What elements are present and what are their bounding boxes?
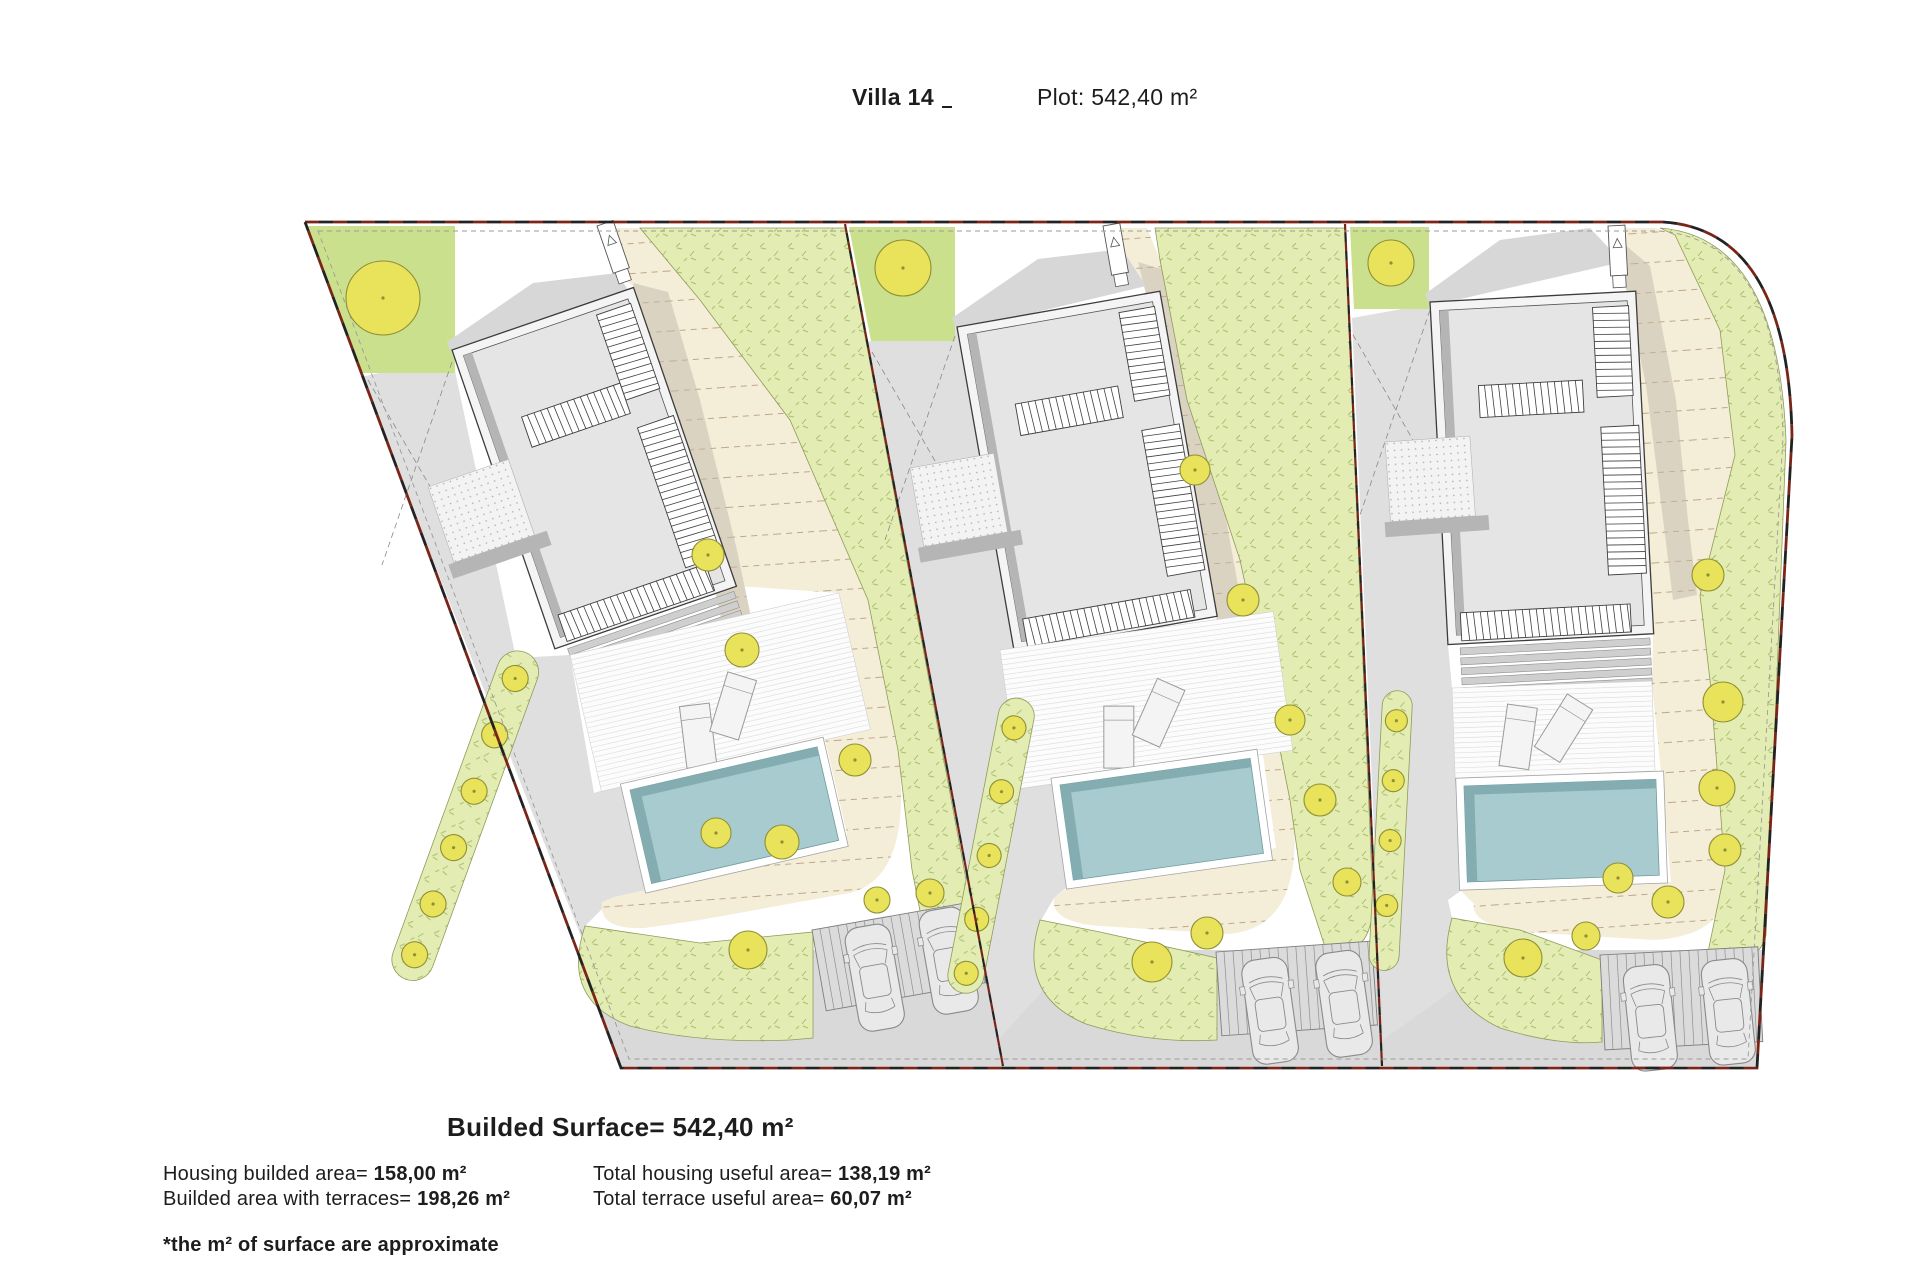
area-row-label: Total housing useful area= <box>593 1163 838 1185</box>
sun-lounger <box>1104 706 1134 768</box>
villa-plot-3 <box>1348 225 1786 1073</box>
title-underline <box>942 106 952 108</box>
tree-icon <box>729 931 767 969</box>
tree-icon <box>916 879 944 907</box>
tree-icon <box>1382 769 1405 792</box>
area-row: Total terrace useful area= 60,07 m² <box>593 1188 912 1211</box>
tree-icon <box>1709 834 1741 866</box>
tree-icon <box>1603 863 1633 893</box>
tree-icon <box>1304 784 1336 816</box>
deck-3 <box>1452 681 1655 786</box>
tree-icon <box>1652 886 1684 918</box>
louver-hatch <box>1478 380 1584 417</box>
area-row-value: 158,00 m² <box>374 1163 467 1185</box>
tree-icon <box>1572 922 1600 950</box>
summary-title: Builded Surface= 542,40 m² <box>447 1112 794 1143</box>
tree-icon <box>1379 829 1402 852</box>
grass-strip-1 <box>386 645 544 986</box>
tree-icon <box>692 539 724 571</box>
area-row-label: Total terrace useful area= <box>593 1188 830 1210</box>
tree-icon <box>1375 894 1398 917</box>
tree-icon <box>725 633 759 667</box>
tree-icon <box>1333 868 1361 896</box>
tree-icon <box>1275 705 1305 735</box>
area-row-value: 60,07 m² <box>830 1188 912 1210</box>
plot-area-label: Plot: 542,40 m² <box>1037 84 1197 111</box>
area-row-label: Housing builded area= <box>163 1163 374 1185</box>
tree-icon <box>864 887 890 913</box>
tree-icon <box>875 240 931 296</box>
tree-icon <box>1368 240 1414 286</box>
page-title: Villa 14 <box>852 84 934 111</box>
approximate-note: *the m² of surface are approximate <box>163 1234 499 1257</box>
tree-icon <box>1703 682 1743 722</box>
tree-icon <box>1692 559 1724 591</box>
area-row: Housing builded area= 158,00 m² <box>163 1163 467 1186</box>
tree-icon <box>765 825 799 859</box>
tree-icon <box>1191 917 1223 949</box>
pool-3 <box>1456 771 1668 890</box>
louver-hatch <box>1601 425 1647 575</box>
area-row-value: 138,19 m² <box>838 1163 931 1185</box>
tree-icon <box>346 261 420 335</box>
tree-icon <box>701 818 731 848</box>
area-row-label: Builded area with terraces= <box>163 1188 417 1210</box>
area-row: Total housing useful area= 138,19 m² <box>593 1163 931 1186</box>
site-plan-svg <box>0 0 1920 1286</box>
tree-icon <box>1504 939 1542 977</box>
area-row-value: 198,26 m² <box>417 1188 510 1210</box>
tree-icon <box>1180 455 1210 485</box>
tree-icon <box>1699 770 1735 806</box>
tree-icon <box>1132 942 1172 982</box>
tree-icon <box>1385 709 1408 732</box>
site-plan <box>305 220 1792 1072</box>
tree-icon <box>1227 584 1259 616</box>
site-plan-page: Villa 14 Plot: 542,40 m² Builded Surface… <box>0 0 1920 1286</box>
louver-hatch <box>1593 306 1634 398</box>
tree-icon <box>839 744 871 776</box>
area-row: Builded area with terraces= 198,26 m² <box>163 1188 510 1211</box>
walkway-3 <box>1608 225 1628 288</box>
